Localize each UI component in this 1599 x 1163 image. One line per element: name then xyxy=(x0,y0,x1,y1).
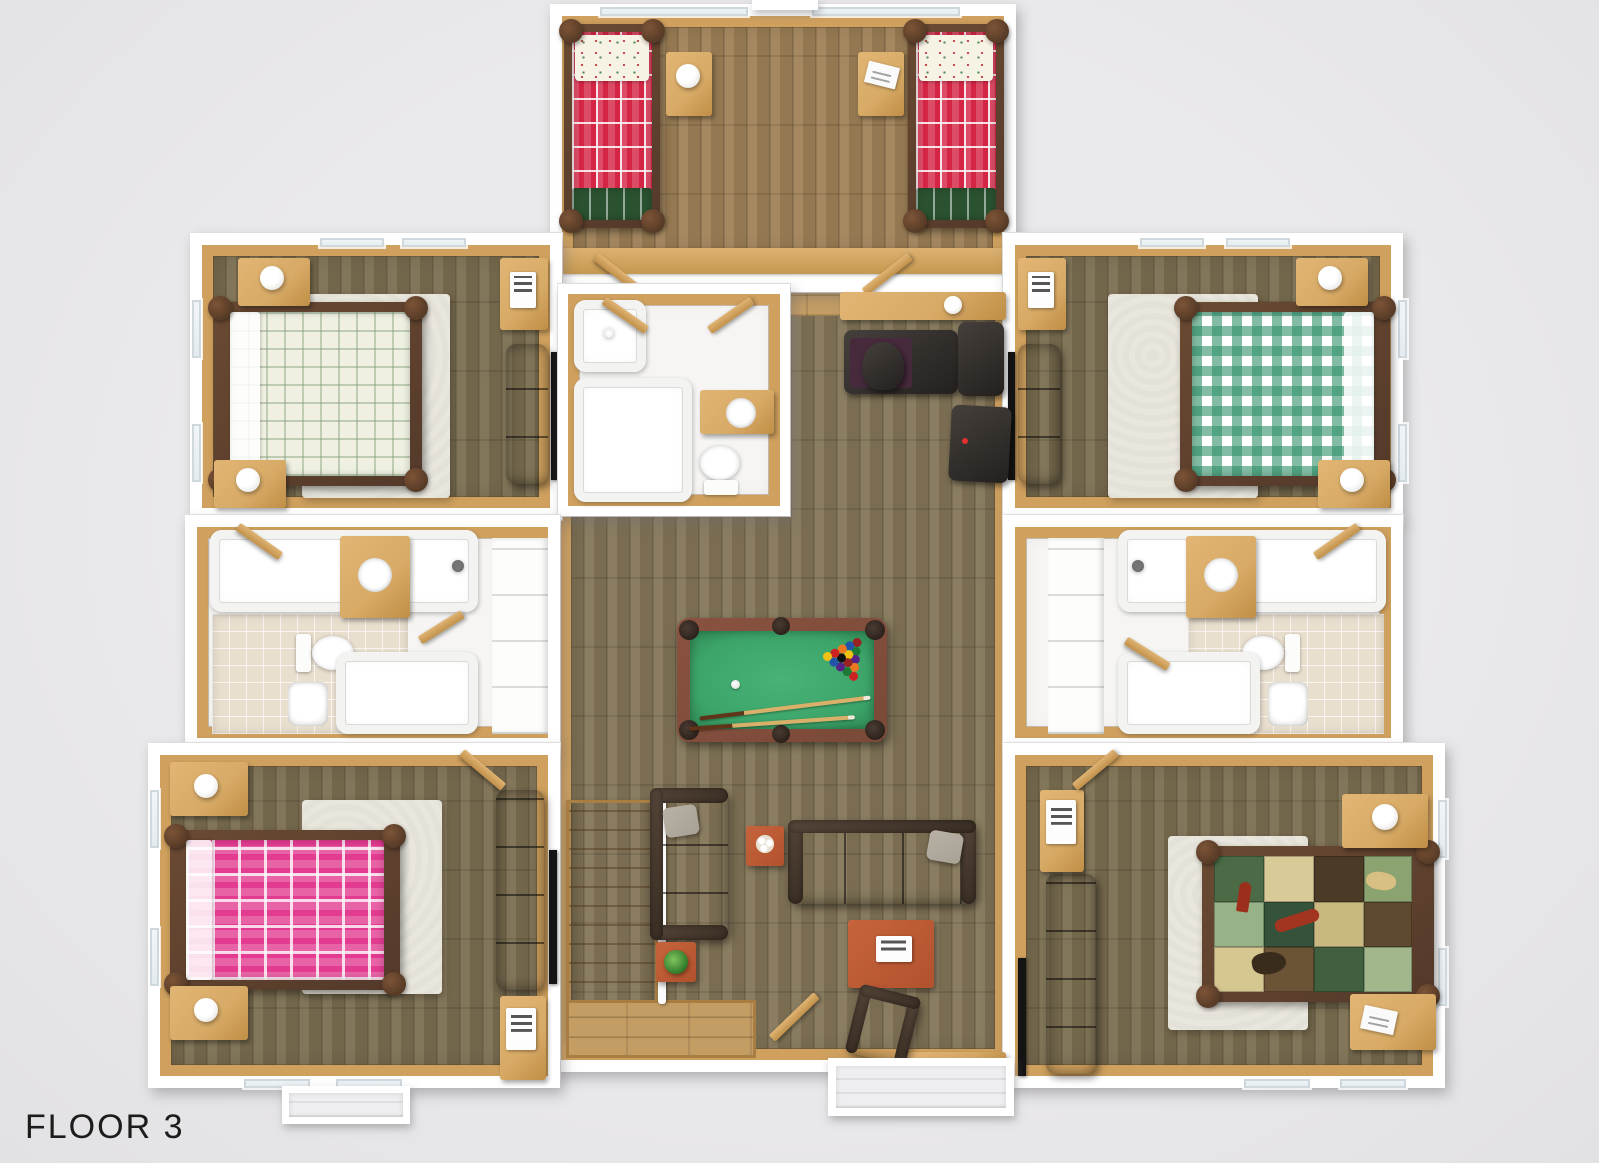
bath-west-sink2 xyxy=(288,682,328,726)
pool-pocket xyxy=(679,620,699,640)
bedroom-sw-bed xyxy=(170,830,400,990)
bedroom-ne-loveseat xyxy=(1018,344,1060,484)
twin-bed-left-pillow xyxy=(575,35,649,81)
twin-bed-left-blanket xyxy=(572,188,652,220)
bedroom-sw-lamp-top xyxy=(194,774,218,798)
center-bathtub xyxy=(574,378,692,502)
nook-cabinet-2 xyxy=(948,404,1012,483)
nook-cup xyxy=(944,296,962,314)
bedroom-se-info-plaque xyxy=(1046,800,1076,844)
nook-office-chair xyxy=(862,342,904,390)
bedroom-nw-tv xyxy=(551,352,558,480)
bunk-window-right xyxy=(812,7,960,16)
bedroom-ne-bed-sheet xyxy=(1344,312,1374,476)
bedroom-nw-bed-sheet xyxy=(230,312,260,476)
stair-landing xyxy=(566,1000,756,1058)
bedroom-sw-bed-pink-plaid xyxy=(186,840,384,980)
bedroom-sw-window-left2 xyxy=(150,928,159,986)
bedroom-nw-bed xyxy=(214,302,422,486)
south-balcony-deck xyxy=(836,1066,1006,1108)
pool-table xyxy=(677,618,887,742)
bath-west-vanity-sink xyxy=(358,558,392,592)
twin-bed-right-pillow xyxy=(919,35,993,81)
center-toilet-tank xyxy=(704,480,738,495)
bedroom-se-lamp-top xyxy=(1372,804,1398,830)
bedroom-ne-window-top1 xyxy=(1140,238,1204,247)
bedroom-ne-lamp-top xyxy=(1318,266,1342,290)
center-shower-drain xyxy=(604,328,614,338)
southwest-stoop xyxy=(282,1086,410,1124)
sofa-pillow-gray-2 xyxy=(926,829,965,864)
bedroom-ne-info-plaque xyxy=(1028,272,1054,308)
bath-east-vanity-sink xyxy=(1204,558,1238,592)
bedroom-nw-info-plaque xyxy=(510,272,536,308)
floor-label: FLOOR 3 xyxy=(25,1108,184,1147)
bedroom-nw-loveseat xyxy=(506,344,548,484)
bedroom-sw-loveseat xyxy=(496,790,544,990)
bunk-room-log-wall xyxy=(562,248,1004,274)
cue-ball xyxy=(731,680,740,689)
bedroom-ne-window-top2 xyxy=(1226,238,1290,247)
bedroom-nw-lamp-bottom xyxy=(236,468,260,492)
pool-pocket xyxy=(772,725,790,743)
bunk-lamp xyxy=(676,64,700,88)
nook-cabinet-1 xyxy=(958,322,1004,396)
north-stoop xyxy=(752,0,818,10)
coffee-table-game-box xyxy=(876,936,912,962)
pool-pocket xyxy=(865,620,885,640)
potted-plant xyxy=(664,950,688,974)
bedroom-se-window-bottom2 xyxy=(1340,1079,1406,1088)
bedroom-se-tv xyxy=(1018,958,1026,1076)
bedroom-nw-window-top1 xyxy=(320,238,384,247)
bedroom-sw-tv xyxy=(549,850,557,984)
bedroom-nw-window-top2 xyxy=(402,238,466,247)
pool-pocket xyxy=(865,720,885,740)
bedroom-sw-window-left1 xyxy=(150,790,159,848)
bath-east-tub2 xyxy=(1118,652,1260,734)
bath-west-linen-closet xyxy=(492,538,548,734)
bedroom-se-window-bottom1 xyxy=(1244,1079,1310,1088)
bedroom-ne-window-right1 xyxy=(1398,300,1407,358)
bedroom-se-loveseat xyxy=(1046,874,1096,1074)
twin-bed-right xyxy=(908,24,1004,228)
bedroom-sw-info-plaque xyxy=(506,1008,536,1050)
bedroom-se-bed-quilt xyxy=(1214,856,1412,992)
nook-cabinet-led xyxy=(962,438,968,444)
flower-bouquet xyxy=(754,834,776,854)
bunk-window-left xyxy=(600,7,748,16)
southwest-stoop-deck xyxy=(289,1093,403,1117)
bedroom-sw-lamp-bottom xyxy=(194,998,218,1022)
bath-west-toilet-tank xyxy=(296,634,311,672)
twin-bed-left xyxy=(564,24,660,228)
floor-plan-stage: FLOOR 3 xyxy=(0,0,1599,1163)
pool-pocket xyxy=(772,617,790,635)
bedroom-ne-window-right2 xyxy=(1398,424,1407,482)
center-toilet-bowl xyxy=(700,446,740,480)
bedroom-ne-lamp-bottom xyxy=(1340,468,1364,492)
bedroom-sw-bed-sheet xyxy=(186,840,212,980)
center-vanity-sink xyxy=(726,398,756,428)
bedroom-nw-lamp-top xyxy=(260,266,284,290)
bedroom-ne-bed xyxy=(1180,302,1390,486)
bath-east-sink2 xyxy=(1268,682,1308,726)
bath-east-linen-closet xyxy=(1048,538,1104,734)
bath-east-toilet-tank xyxy=(1285,634,1300,672)
bedroom-nw-window-left2 xyxy=(192,424,201,482)
bedroom-nw-window-left1 xyxy=(192,300,201,358)
nook-counter xyxy=(840,292,1006,320)
sofa-pillow-gray xyxy=(662,804,700,839)
bath-west-tub-faucet xyxy=(452,560,464,572)
bath-east-tub-faucet xyxy=(1132,560,1144,572)
bedroom-se-bed xyxy=(1202,846,1434,1002)
south-balcony xyxy=(828,1058,1014,1116)
bath-west-tub2 xyxy=(336,652,478,734)
twin-bed-right-blanket xyxy=(916,188,996,220)
